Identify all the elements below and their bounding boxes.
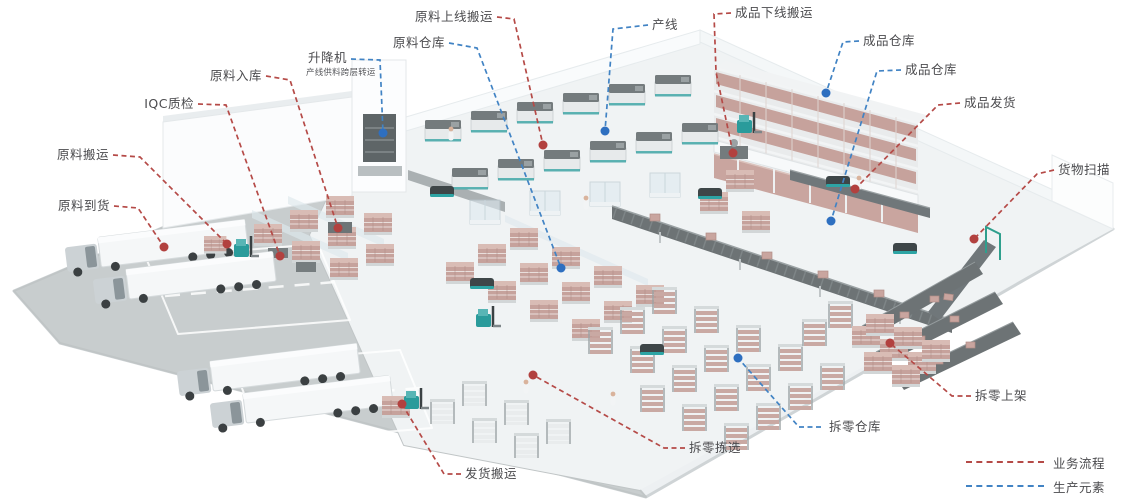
callout-dot-raw-material-arrival bbox=[160, 243, 169, 252]
callout-label-finished-goods-warehouse-upper: 成品仓库 bbox=[863, 34, 915, 48]
legend-label-element: 生产元素 bbox=[1053, 477, 1105, 496]
callout-label-raw-material-inbound: 原料入库 bbox=[210, 69, 262, 83]
factory-illustration bbox=[0, 0, 1135, 501]
callout-label-split-case-warehouse: 拆零仓库 bbox=[829, 420, 881, 434]
callout-dot-finished-goods-shipping bbox=[851, 185, 860, 194]
callout-label-split-case-picking: 拆零拣选 bbox=[689, 441, 741, 455]
callout-dot-raw-material-line-feed bbox=[539, 141, 548, 150]
callout-dot-raw-material-warehouse bbox=[557, 264, 566, 273]
callout-label-lift: 升降机 bbox=[308, 51, 347, 65]
callout-label-finished-goods-offline: 成品下线搬运 bbox=[735, 6, 813, 20]
callout-dot-production-line bbox=[601, 127, 610, 136]
callout-sublabel-lift: 产线供料跨层转运 bbox=[306, 66, 376, 78]
lift-opening bbox=[363, 114, 396, 162]
lift-feed-conveyor bbox=[358, 166, 402, 176]
callout-dot-finished-goods-warehouse-lower bbox=[827, 217, 836, 226]
callout-label-finished-goods-shipping: 成品发货 bbox=[964, 96, 1016, 110]
callout-label-iqc-inspection: IQC质检 bbox=[144, 97, 194, 111]
callout-dot-raw-material-inbound bbox=[334, 224, 343, 233]
callout-dot-lift bbox=[379, 129, 388, 138]
callout-label-shipping-transport: 发货搬运 bbox=[465, 467, 517, 481]
callout-dot-iqc-inspection bbox=[276, 252, 285, 261]
iqc-table bbox=[296, 262, 316, 272]
callout-label-split-case-shelving: 拆零上架 bbox=[975, 389, 1027, 403]
legend: 业务流程 生产元素 bbox=[966, 450, 1105, 498]
callout-label-raw-material-line-feed: 原料上线搬运 bbox=[415, 10, 493, 24]
legend-row-element: 生产元素 bbox=[966, 474, 1105, 498]
callout-label-finished-goods-warehouse-lower: 成品仓库 bbox=[905, 63, 957, 77]
legend-label-process: 业务流程 bbox=[1053, 453, 1105, 472]
callout-label-raw-material-handling: 原料搬运 bbox=[57, 148, 109, 162]
callout-line-finished-goods-warehouse-upper bbox=[826, 41, 859, 93]
legend-row-process: 业务流程 bbox=[966, 450, 1105, 474]
callout-dot-finished-goods-offline bbox=[729, 149, 738, 158]
process-dash-icon bbox=[966, 461, 1044, 463]
callout-dot-raw-material-handling bbox=[223, 240, 232, 249]
callout-label-cargo-scanning: 货物扫描 bbox=[1058, 163, 1110, 177]
callout-dot-split-case-shelving bbox=[886, 339, 895, 348]
callout-dot-split-case-picking bbox=[529, 371, 538, 380]
callout-label-production-line: 产线 bbox=[652, 18, 678, 32]
smart-factory-diagram: 原料到货 原料搬运 IQC质检 原料入库 原料上线搬运 升降机 产线供料跨层转运… bbox=[0, 0, 1135, 501]
callout-dot-shipping-transport bbox=[398, 400, 407, 409]
element-dash-icon bbox=[966, 485, 1044, 487]
callout-dot-split-case-warehouse bbox=[734, 354, 743, 363]
callout-label-raw-material-arrival: 原料到货 bbox=[58, 199, 110, 213]
callout-label-raw-material-warehouse: 原料仓库 bbox=[393, 36, 445, 50]
callout-dot-finished-goods-warehouse-upper bbox=[822, 89, 831, 98]
callout-dot-cargo-scanning bbox=[970, 235, 979, 244]
